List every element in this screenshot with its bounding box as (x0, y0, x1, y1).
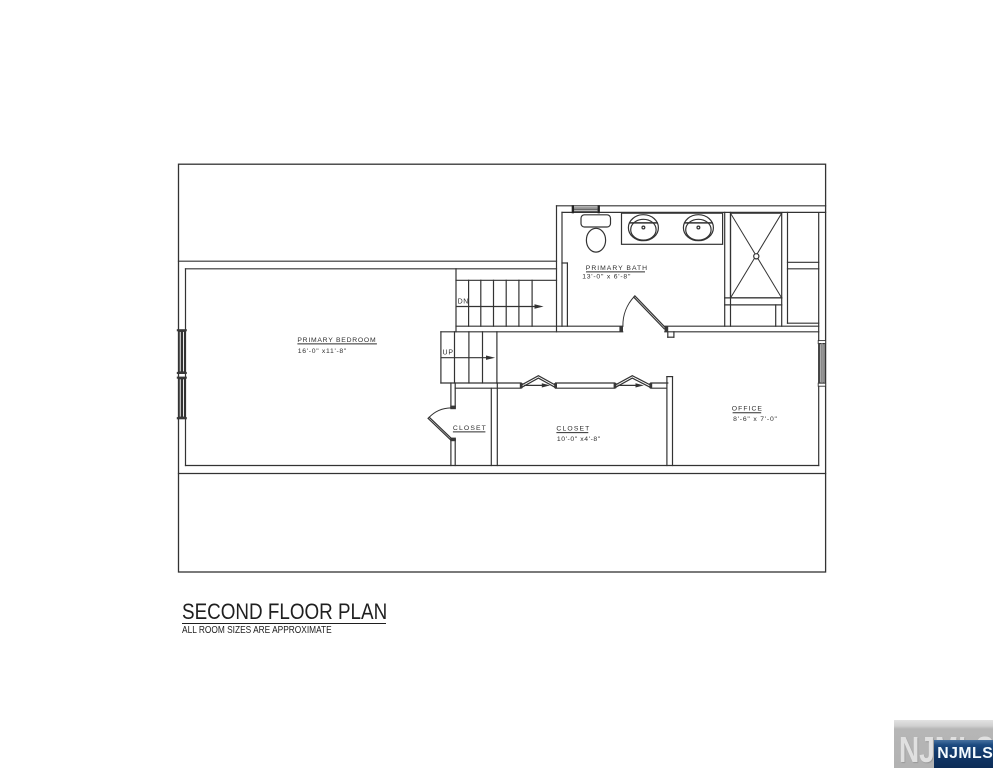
svg-text:OFFICE: OFFICE (732, 406, 763, 413)
svg-text:16'-0" x11'-8": 16'-0" x11'-8" (298, 348, 347, 355)
svg-text:DN: DN (458, 298, 469, 305)
svg-text:8'-6" x 7'-0": 8'-6" x 7'-0" (733, 416, 778, 423)
svg-text:UP: UP (443, 349, 454, 356)
svg-text:PRIMARY BEDROOM: PRIMARY BEDROOM (297, 337, 376, 344)
svg-text:PRIMARY BATH: PRIMARY BATH (586, 265, 648, 272)
svg-text:13'-0" x 6'-8": 13'-0" x 6'-8" (582, 274, 631, 281)
svg-text:10'-0" x4'-8": 10'-0" x4'-8" (557, 436, 601, 443)
svg-text:CLOSET: CLOSET (453, 425, 487, 432)
svg-text:CLOSET: CLOSET (556, 426, 590, 433)
